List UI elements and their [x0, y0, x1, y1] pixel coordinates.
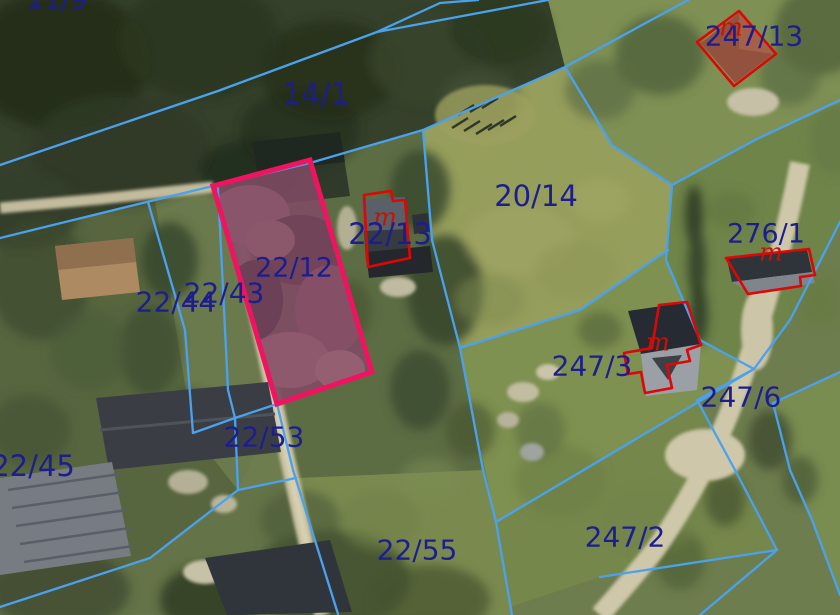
map-viewport[interactable]: mmmm 11/914/1247/1320/1422/13276/122/122…: [0, 0, 840, 615]
parcel-label-247-2: 247/2: [585, 521, 666, 554]
parcel-label-20-14: 20/14: [494, 179, 578, 213]
parcel-label-22-43: 22/43: [184, 277, 265, 310]
parcel-label-22-13: 22/13: [348, 217, 432, 251]
parcel-label-22-55: 22/55: [377, 534, 458, 567]
parcel-label-22-53: 22/53: [224, 421, 305, 454]
aerial-imagery: [0, 0, 840, 615]
parcel-label-11-9: 11/9: [27, 0, 88, 16]
parcel-label-247-3: 247/3: [552, 350, 633, 383]
building-mark-m: m: [646, 328, 670, 357]
parcel-label-276-1: 276/1: [727, 219, 805, 250]
parcel-label-22-45: 22/45: [0, 449, 75, 483]
parcel-label-22-12: 22/12: [255, 253, 333, 284]
cadastral-map-canvas: mmmm 11/914/1247/1320/1422/13276/122/122…: [0, 0, 840, 615]
parcel-label-247-6: 247/6: [701, 381, 782, 414]
parcel-label-14-1: 14/1: [282, 78, 349, 113]
parcel-label-247-13: 247/13: [705, 20, 804, 53]
